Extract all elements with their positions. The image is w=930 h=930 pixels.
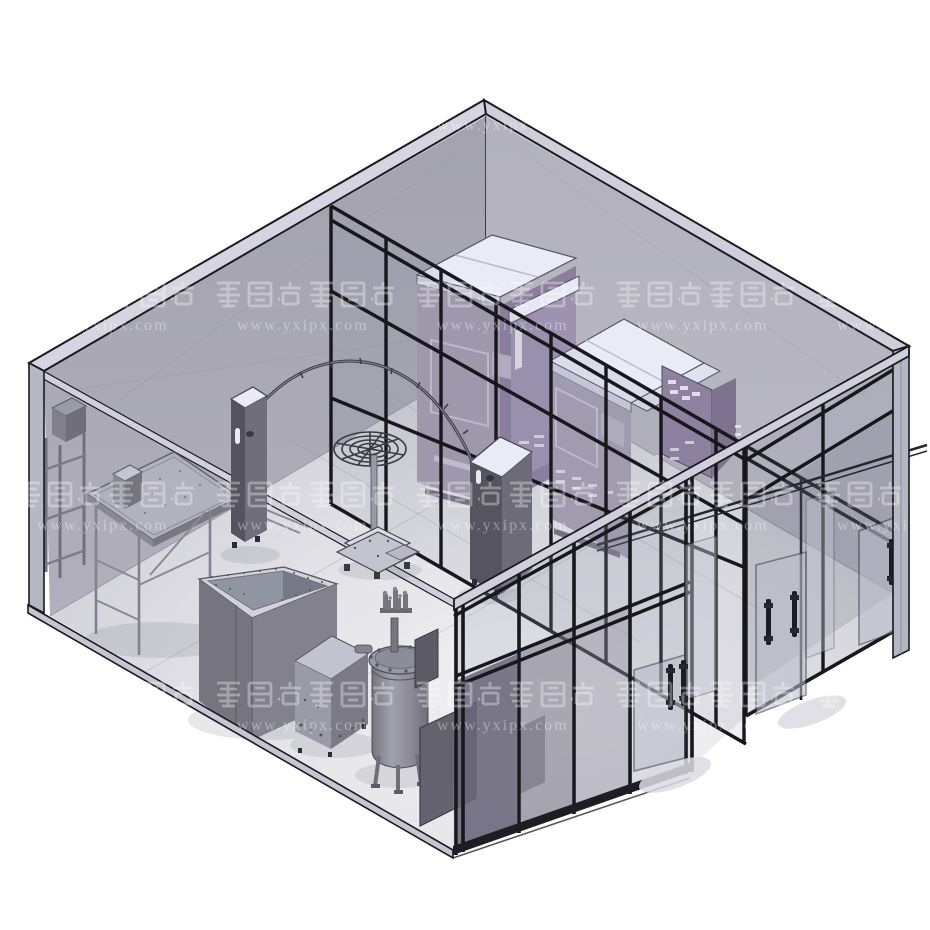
svg-text:www.yxipx.com: www.yxipx.com bbox=[437, 317, 569, 334]
svg-text:www.yxipx.com: www.yxipx.com bbox=[237, 117, 369, 134]
svg-text:www.yxipx.com: www.yxipx.com bbox=[37, 317, 169, 334]
svg-text:www.yxipx.com: www.yxipx.com bbox=[37, 717, 169, 734]
svg-text:www.yxipx.com: www.yxipx.com bbox=[637, 317, 769, 334]
svg-text:www.yxipx.com: www.yxipx.com bbox=[437, 517, 569, 534]
svg-text:www.yxipx.com: www.yxipx.com bbox=[237, 717, 369, 734]
svg-text:www.yxipx.com: www.yxipx.com bbox=[837, 717, 930, 734]
svg-text:www.yxipx.com: www.yxipx.com bbox=[37, 517, 169, 534]
svg-text:www.yxipx.com: www.yxipx.com bbox=[437, 117, 569, 134]
svg-text:www.yxipx.com: www.yxipx.com bbox=[837, 317, 930, 334]
svg-text:www.yxipx.com: www.yxipx.com bbox=[437, 717, 569, 734]
svg-text:www.yxipx.com: www.yxipx.com bbox=[37, 117, 169, 134]
svg-text:www.yxipx.com: www.yxipx.com bbox=[237, 517, 369, 534]
svg-text:www.yxipx.com: www.yxipx.com bbox=[237, 317, 369, 334]
svg-text:www.yxipx.com: www.yxipx.com bbox=[637, 717, 769, 734]
svg-text:www.yxipx.com: www.yxipx.com bbox=[837, 517, 930, 534]
svg-text:www.yxipx.com: www.yxipx.com bbox=[837, 117, 930, 134]
svg-text:www.yxipx.com: www.yxipx.com bbox=[637, 117, 769, 134]
svg-text:www.yxipx.com: www.yxipx.com bbox=[637, 517, 769, 534]
